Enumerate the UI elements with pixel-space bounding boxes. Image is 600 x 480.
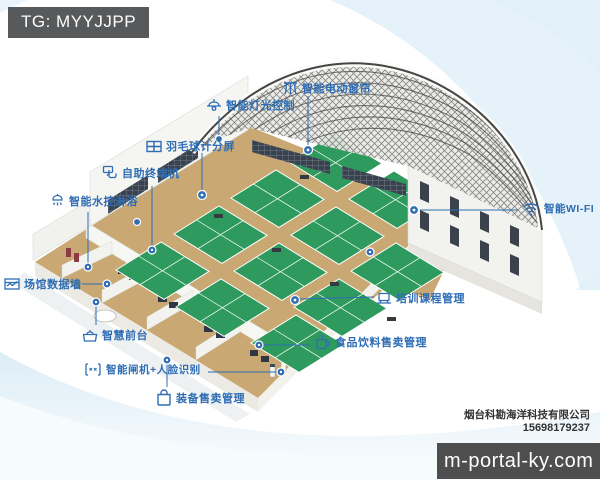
shower-icon — [50, 193, 65, 209]
callout-label: 智能闸机+人脸识别 — [106, 362, 201, 377]
company-name: 烟台科勘海洋科技有限公司 — [464, 409, 590, 422]
callout-label: 羽毛球计分屏 — [166, 138, 235, 154]
touch-icon — [102, 165, 118, 181]
building-illustration — [0, 0, 600, 480]
callout-label: 智能灯光控制 — [226, 97, 295, 113]
callout-food-beverage: 食品饮料售卖管理 — [314, 334, 427, 350]
callout-gate-face-recognition: 智能闸机+人脸识别 — [84, 362, 201, 377]
callout-smart-wifi: 智能WI-FI — [522, 201, 594, 216]
scoreboard-icon — [146, 140, 162, 153]
datawall-icon — [4, 277, 20, 291]
callout-label: 自助终端机 — [122, 165, 180, 181]
callout-label: 食品饮料售卖管理 — [335, 334, 427, 350]
bag-icon — [156, 389, 172, 406]
callout-label: 智慧前台 — [102, 327, 148, 343]
callout-smart-curtain: 智能电动窗帘 — [283, 80, 371, 96]
callout-data-wall: 场馆数据墙 — [4, 276, 82, 292]
callout-self-service-terminal: 自助终端机 — [102, 165, 180, 181]
cup-icon — [314, 334, 331, 350]
callout-label: 培训课程管理 — [396, 290, 465, 306]
curtain-icon — [283, 81, 298, 96]
light-icon — [206, 98, 222, 113]
company-info: 烟台科勘海洋科技有限公司 15698179237 — [464, 409, 590, 436]
wifi-icon — [522, 202, 540, 216]
company-phone: 15698179237 — [464, 422, 590, 436]
watermark-bar: m-portal-ky.com — [437, 443, 600, 479]
callout-training-management: 培训课程管理 — [376, 290, 465, 306]
callout-score-screen: 羽毛球计分屏 — [146, 138, 235, 154]
callout-smart-front-desk: 智慧前台 — [82, 327, 148, 343]
callout-label: 装备售卖管理 — [176, 390, 245, 406]
laptop-icon — [376, 292, 392, 305]
gate-icon — [84, 363, 102, 376]
callout-smart-shower: 智能水控淋浴 — [50, 193, 138, 209]
callout-label: 智能电动窗帘 — [302, 80, 371, 96]
callout-smart-lighting: 智能灯光控制 — [206, 97, 295, 113]
infographic-canvas: TG: MYYJJPP 智能电动窗帘 智能灯光控制 羽毛球计分屏 — [0, 0, 600, 480]
callout-label: 智能水控淋浴 — [69, 193, 138, 209]
callout-label: 智能WI-FI — [544, 201, 594, 216]
telegram-badge: TG: MYYJJPP — [8, 7, 149, 38]
callout-equipment-sales: 装备售卖管理 — [156, 389, 245, 406]
callout-label: 场馆数据墙 — [24, 276, 82, 292]
desk-icon — [82, 328, 98, 343]
